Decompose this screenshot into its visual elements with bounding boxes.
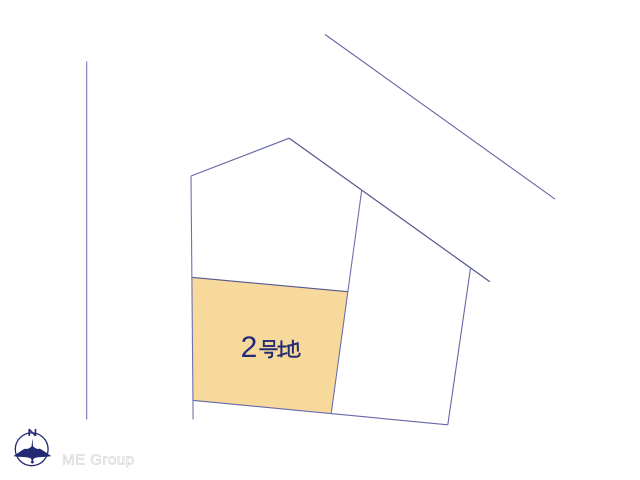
svg-text:ME Group: ME Group	[62, 452, 134, 469]
svg-text:2: 2	[241, 331, 258, 364]
